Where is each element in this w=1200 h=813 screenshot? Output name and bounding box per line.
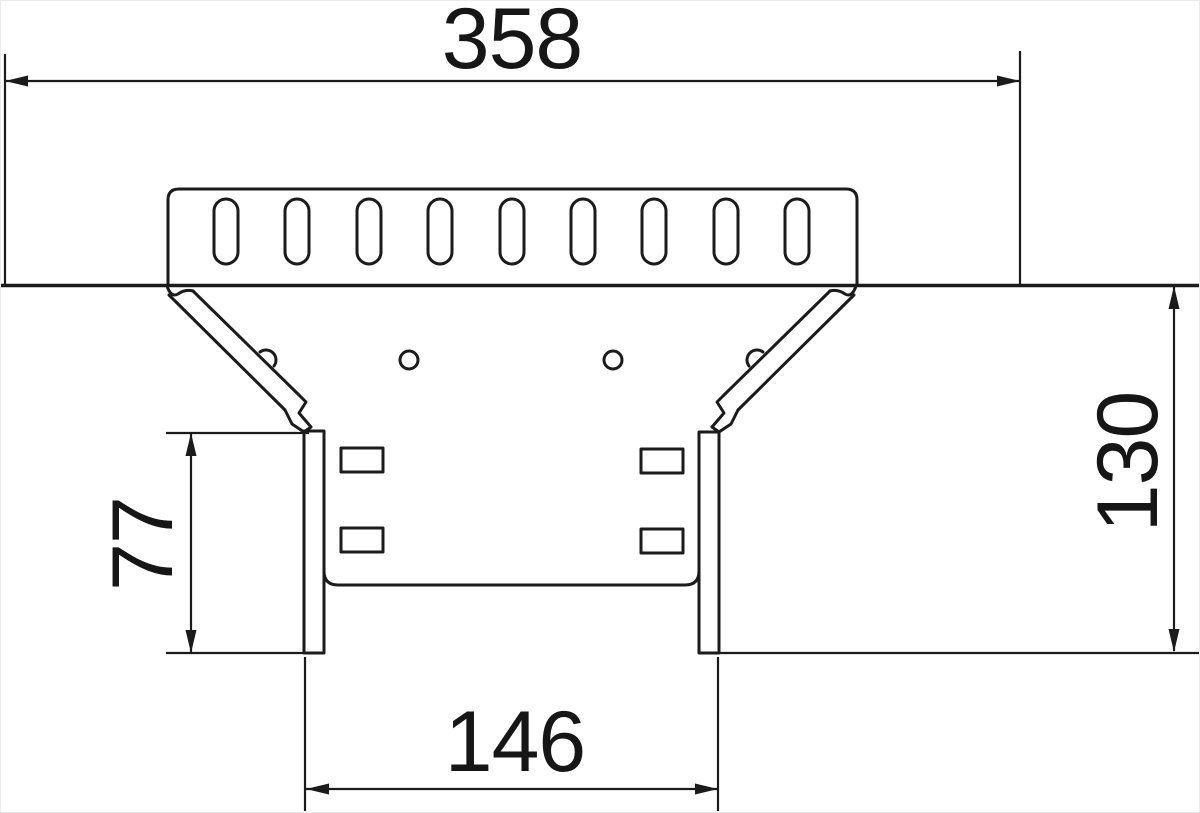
arrowhead-up — [1169, 286, 1180, 309]
dimension-overall-length: 358 — [5, 1, 1020, 284]
arrowhead-left — [5, 76, 28, 87]
rail-inner-line — [193, 291, 299, 395]
rail-hook — [167, 286, 193, 295]
slot-hole — [500, 199, 524, 264]
dimension-value-branch-side-length: 77 — [95, 497, 191, 591]
technical-drawing: 358 77 130 146 — [1, 1, 1200, 813]
slot-hole — [571, 199, 595, 264]
slot-hole — [785, 199, 809, 264]
slot-hole — [714, 199, 738, 264]
arrowhead-down — [186, 630, 197, 653]
branch-wall-left — [304, 431, 324, 653]
slot-hole — [285, 199, 309, 264]
branch-side-slots — [341, 448, 683, 553]
slot-hole — [214, 199, 238, 264]
rail-hook — [830, 286, 856, 295]
side-slot — [341, 448, 383, 472]
drawing-canvas: 358 77 130 146 — [0, 0, 1200, 813]
rail-foot — [712, 395, 738, 432]
rail-inner-line — [724, 291, 830, 395]
slot-hole — [642, 199, 666, 264]
top-plate-slots — [214, 199, 809, 264]
side-slot — [341, 528, 383, 552]
round-hole — [400, 351, 418, 369]
transition-rail-right — [712, 286, 856, 432]
arrowhead-right — [695, 784, 718, 795]
dimension-branch-depth: 130 — [699, 286, 1200, 653]
arrowhead-left — [306, 784, 329, 795]
side-slot — [641, 449, 683, 473]
dimension-value-branch-width: 146 — [445, 694, 586, 790]
branch-bottom-edge — [324, 571, 699, 585]
arrowhead-down — [1169, 629, 1180, 652]
arrowhead-right — [997, 76, 1020, 87]
slot-hole — [428, 199, 452, 264]
rail-outer-line — [169, 295, 285, 410]
dimension-branch-side-length: 77 — [95, 433, 324, 653]
top-plate-outline — [168, 189, 857, 285]
transition-rail-left — [167, 286, 311, 432]
rail-foot — [285, 395, 311, 432]
branch-outlet — [304, 431, 719, 653]
mounting-holes — [400, 351, 622, 369]
dimension-value-overall-length: 358 — [442, 1, 583, 87]
round-hole — [604, 351, 622, 369]
arrowhead-up — [186, 433, 197, 456]
side-slot — [641, 529, 683, 553]
rail-outer-line — [738, 295, 854, 410]
dimension-branch-width: 146 — [305, 657, 718, 811]
branch-wall-right — [699, 432, 719, 653]
dimension-value-branch-depth: 130 — [1080, 392, 1176, 533]
slot-hole — [357, 199, 381, 264]
